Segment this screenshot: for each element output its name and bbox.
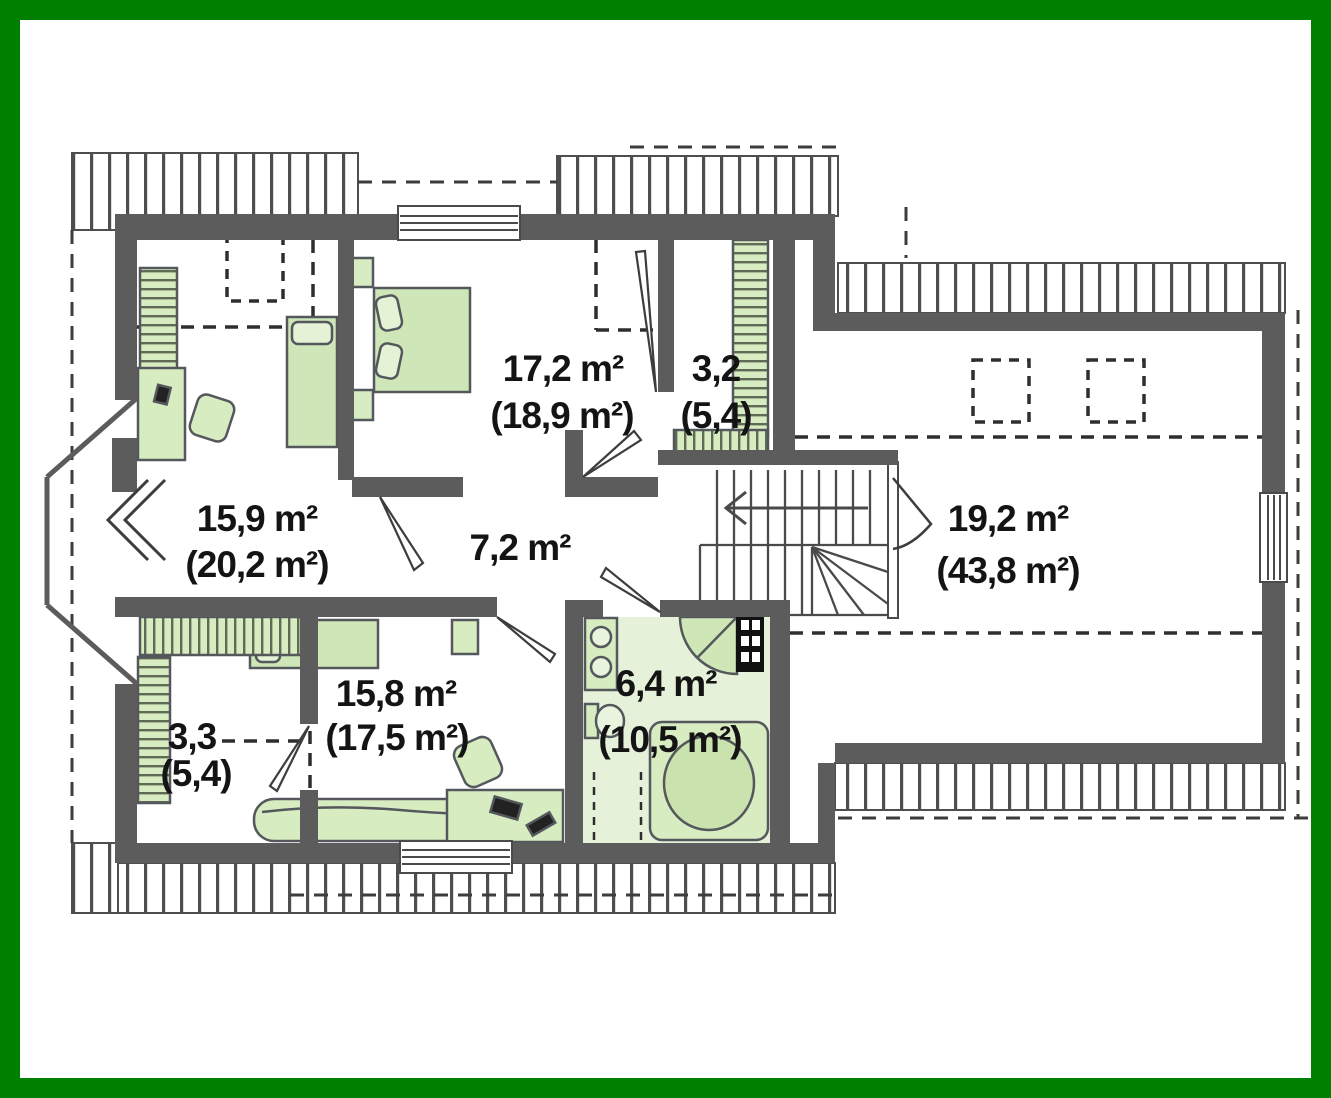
floor-plan-page: 15,9 m² (20,2 m²) 17,2 m² (18,9 m²) 3,2 … (0, 0, 1331, 1098)
room-label-bedroom-top-area: 17,2 m² (503, 347, 624, 391)
room-label-bedroom-top-total: (18,9 m²) (490, 394, 633, 438)
room-label-closet-top-area: 3,2 (692, 347, 740, 391)
room-label-hall-area: 7,2 m² (470, 526, 571, 570)
room-labels: 15,9 m² (20,2 m²) 17,2 m² (18,9 m²) 3,2 … (0, 0, 1331, 1098)
room-label-bedroom-bottom-total: (17,5 m²) (325, 716, 468, 760)
room-label-attic-room-total: (43,8 m²) (936, 549, 1079, 593)
room-label-bedroom-left-total: (20,2 m²) (185, 543, 328, 587)
room-label-closet-bottom-total: (5,4) (160, 752, 231, 796)
room-label-bedroom-left-area: 15,9 m² (197, 497, 318, 541)
room-label-bathroom-total: (10,5 m²) (598, 718, 741, 762)
room-label-attic-room-area: 19,2 m² (948, 497, 1069, 541)
room-label-bathroom-area: 6,4 m² (616, 662, 717, 706)
room-label-closet-top-total: (5,4) (680, 394, 751, 438)
room-label-bedroom-bottom-area: 15,8 m² (336, 672, 457, 716)
